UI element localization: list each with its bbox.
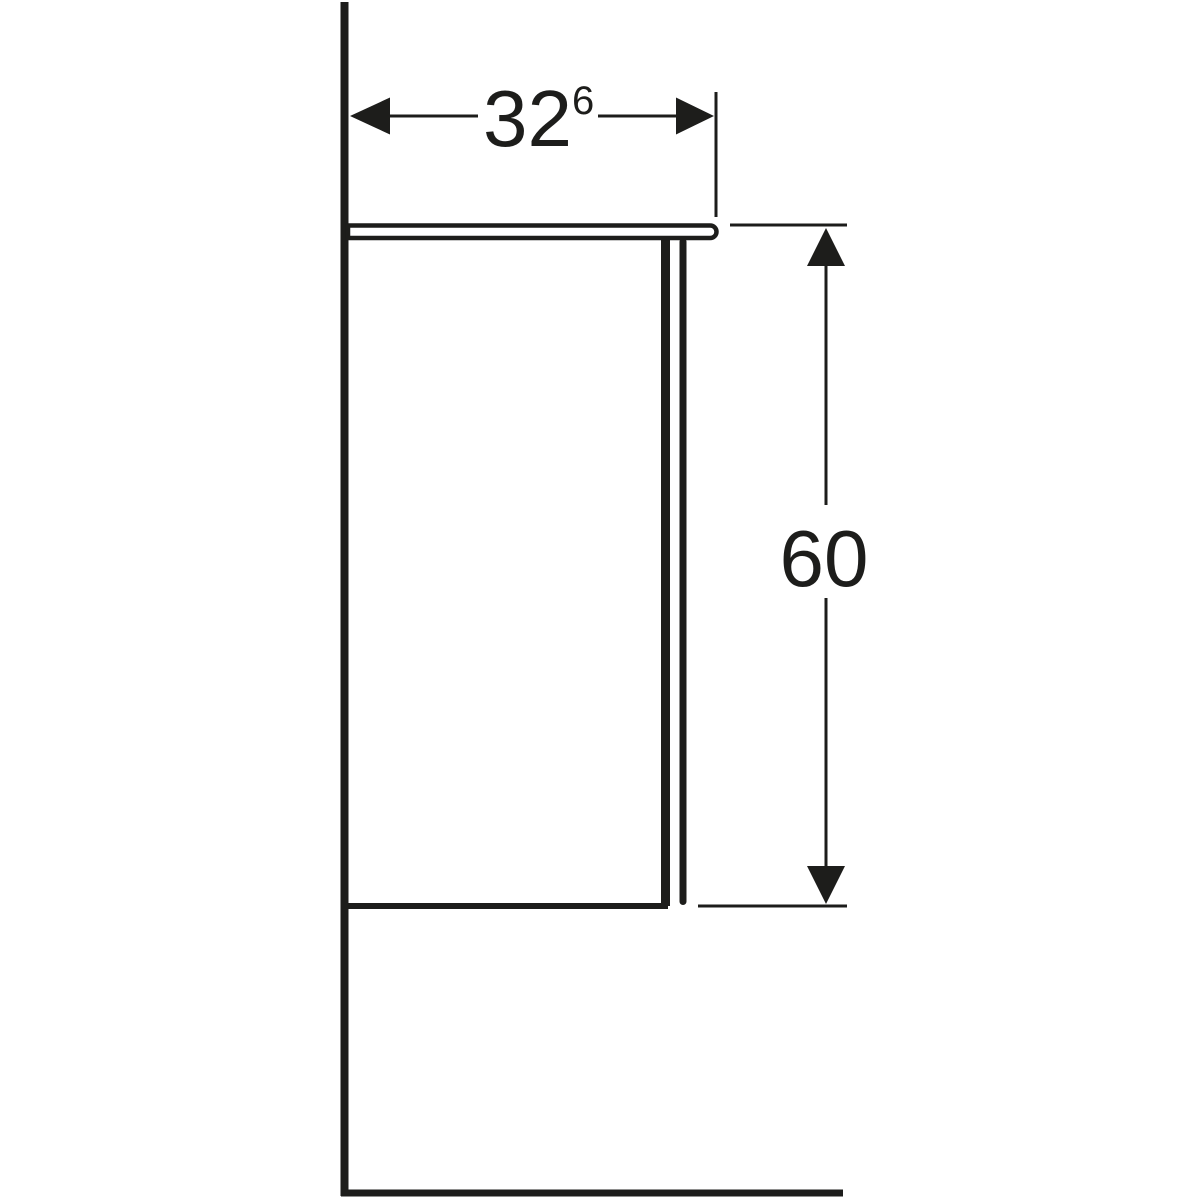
height-arrow-down-icon bbox=[807, 866, 845, 904]
cabinet-top-panel bbox=[348, 226, 717, 239]
drawing-svg: 326 60 bbox=[0, 0, 1200, 1200]
technical-drawing-canvas: 326 60 bbox=[0, 0, 1200, 1200]
width-arrow-right-icon bbox=[676, 98, 714, 135]
width-arrow-left-icon bbox=[350, 98, 390, 135]
width-dimension-value: 32 bbox=[483, 74, 572, 163]
width-dimension-superscript: 6 bbox=[572, 79, 594, 123]
height-arrow-up-icon bbox=[807, 228, 845, 266]
height-dimension-label: 60 bbox=[780, 514, 869, 603]
width-dimension-label: 326 bbox=[483, 74, 594, 163]
